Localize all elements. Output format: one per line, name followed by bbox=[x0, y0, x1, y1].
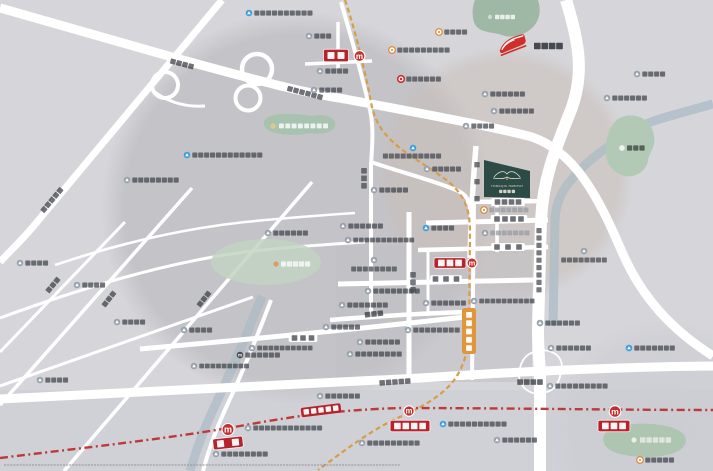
svg-text:m: m bbox=[238, 353, 242, 358]
svg-text:m: m bbox=[224, 425, 232, 435]
svg-text:m: m bbox=[406, 407, 413, 416]
svg-text:m: m bbox=[611, 407, 619, 417]
svg-text:m: m bbox=[356, 52, 363, 61]
svg-text:m: m bbox=[469, 259, 476, 268]
svg-text:YONGQIU HABITAT: YONGQIU HABITAT bbox=[491, 184, 524, 188]
